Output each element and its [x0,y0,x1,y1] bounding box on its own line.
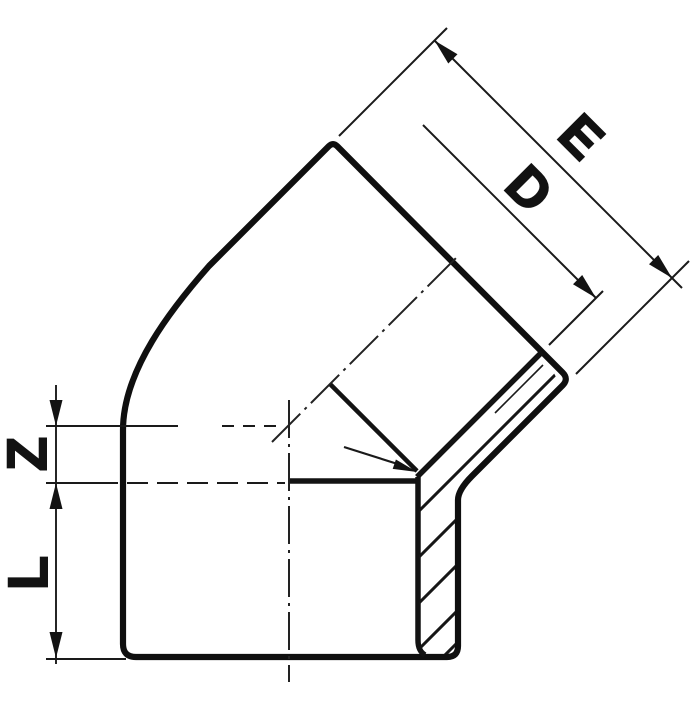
svg-text:L: L [0,556,59,590]
svg-text:Z: Z [0,437,58,471]
